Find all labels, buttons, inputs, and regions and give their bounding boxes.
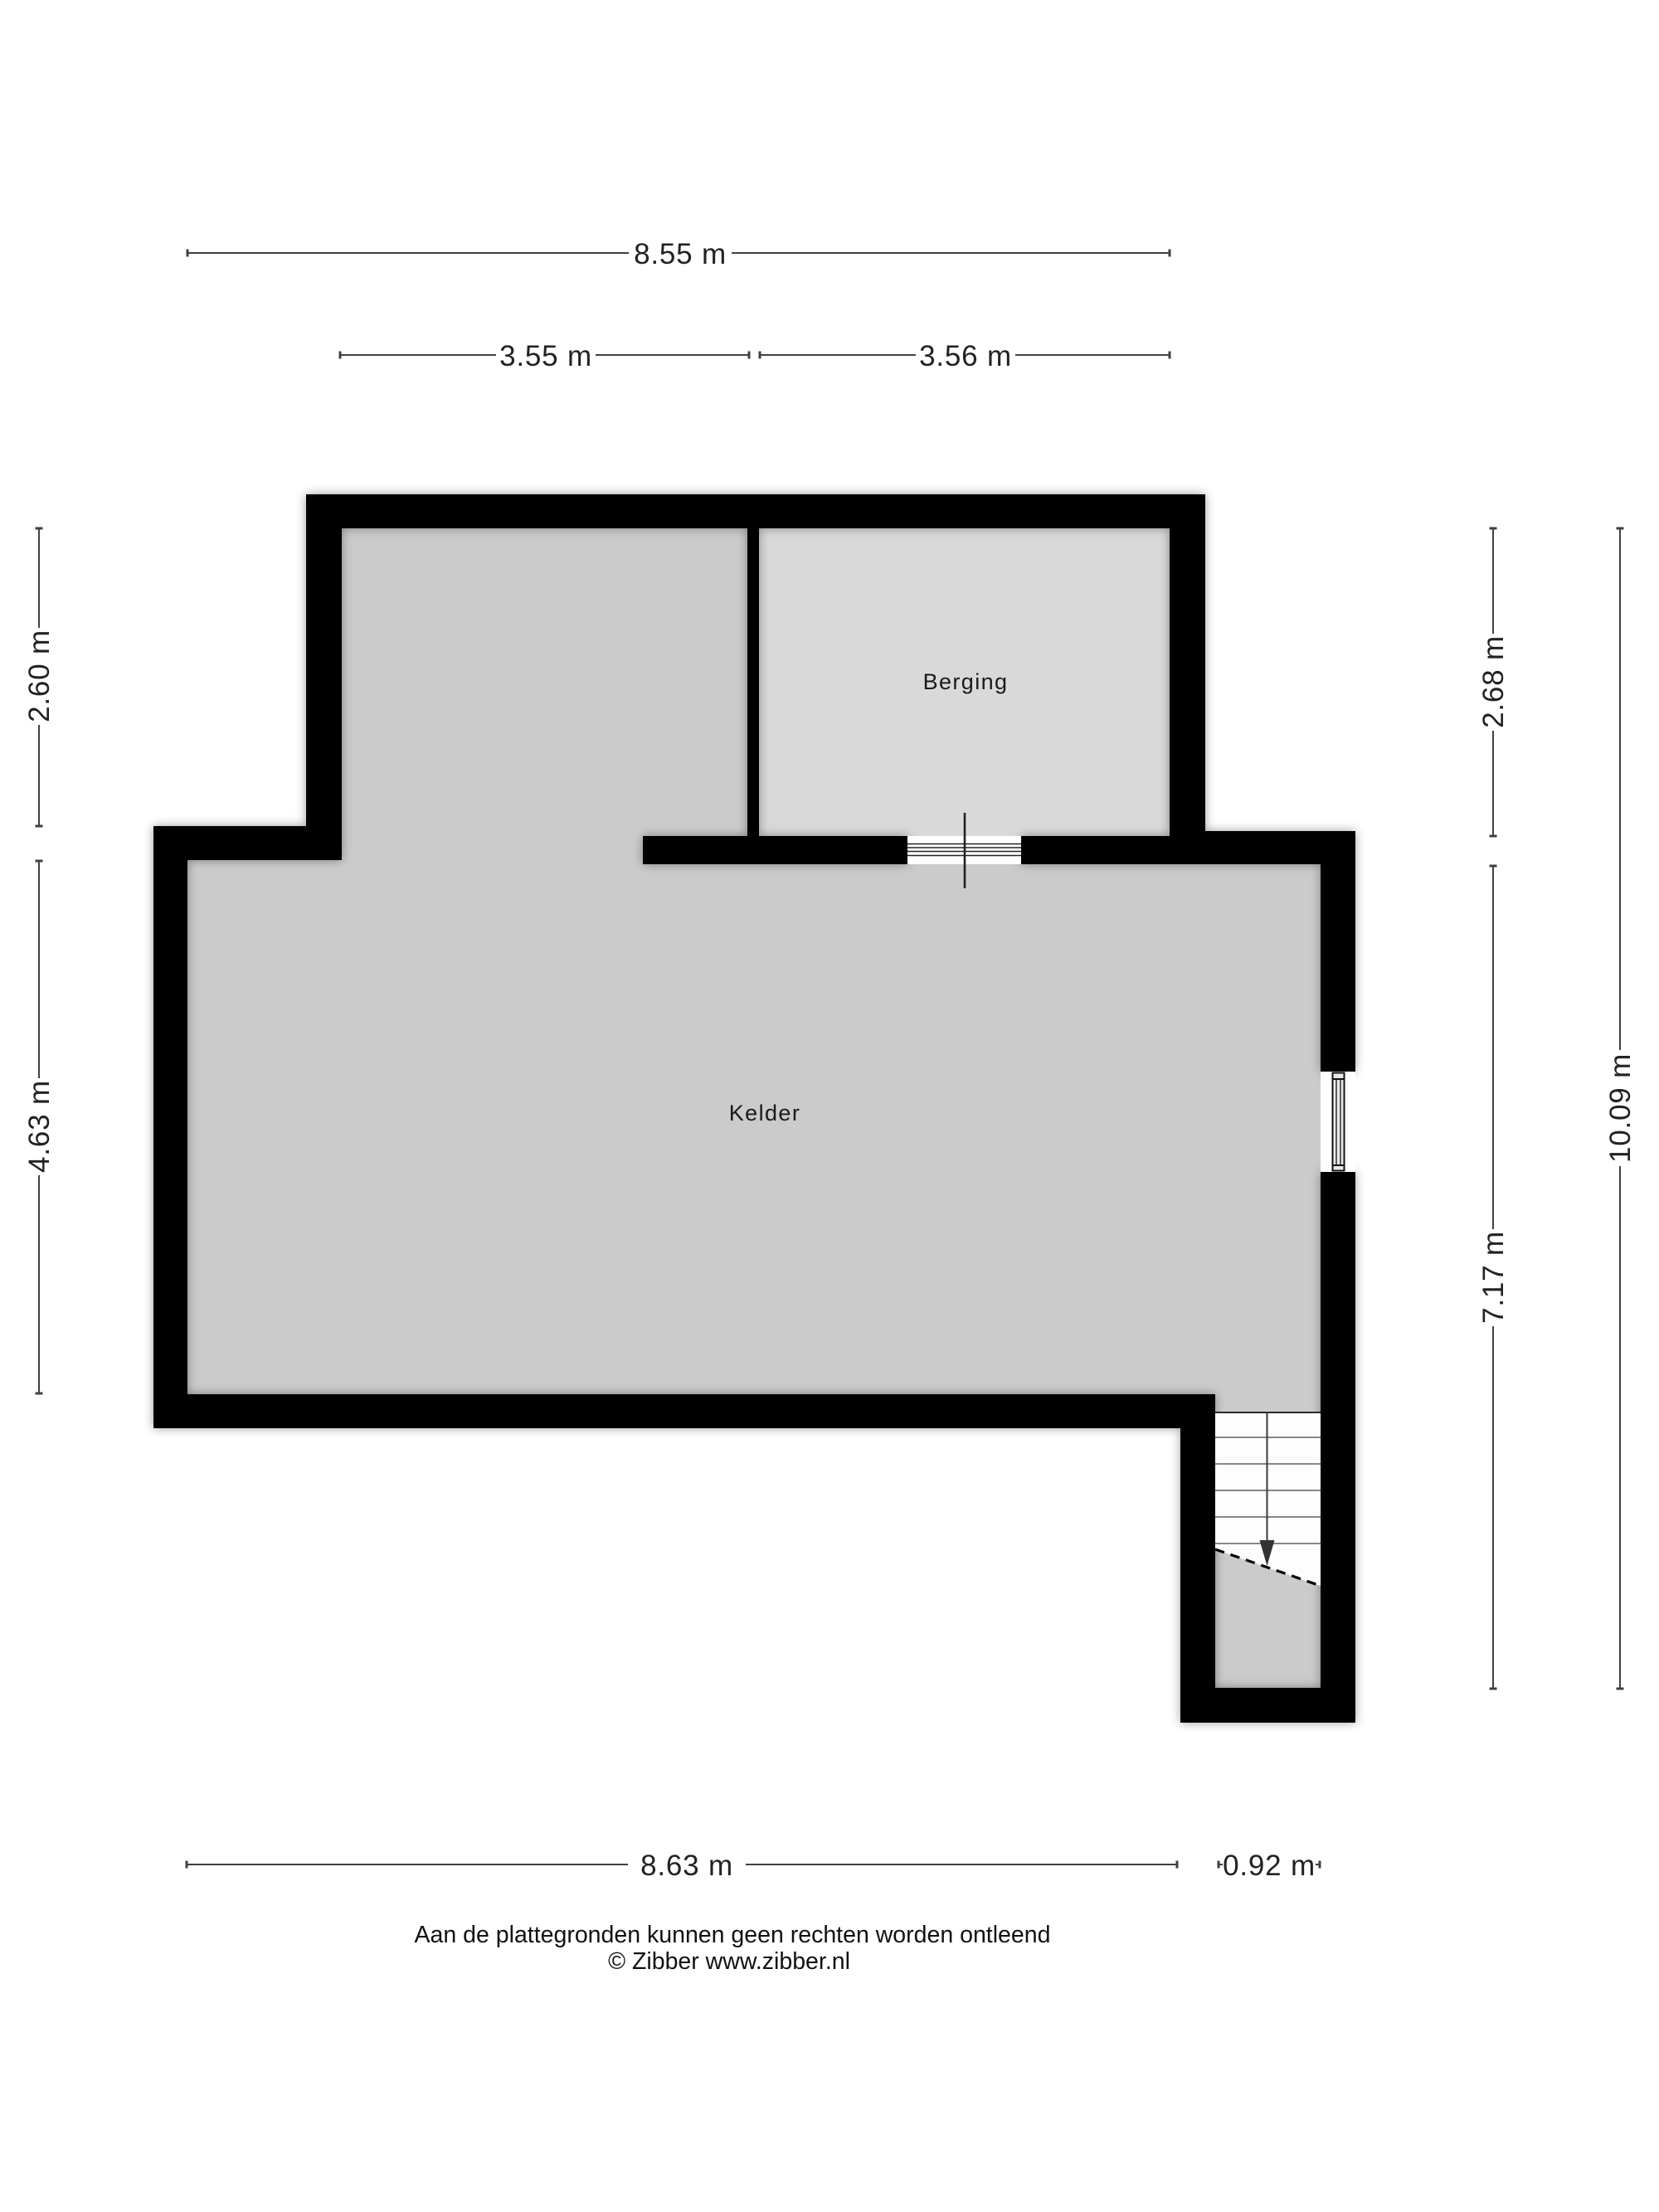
svg-text:8.63 m: 8.63 m [640, 1850, 733, 1882]
svg-text:0.92 m: 0.92 m [1223, 1850, 1316, 1882]
svg-text:10.09 m: 10.09 m [1604, 1053, 1637, 1163]
svg-text:Aan de plattegronden kunnen ge: Aan de plattegronden kunnen geen rechten… [415, 1922, 1051, 1948]
svg-text:3.55 m: 3.55 m [499, 340, 592, 372]
svg-text:2.60 m: 2.60 m [23, 630, 56, 722]
svg-text:Berging: Berging [923, 669, 1009, 694]
svg-text:4.63 m: 4.63 m [23, 1080, 56, 1173]
svg-text:3.56 m: 3.56 m [919, 340, 1012, 372]
svg-text:2.68 m: 2.68 m [1477, 635, 1510, 728]
svg-text:© Zibber www.zibber.nl: © Zibber www.zibber.nl [608, 1948, 850, 1975]
svg-text:Kelder: Kelder [729, 1101, 800, 1125]
svg-text:7.17 m: 7.17 m [1477, 1231, 1510, 1324]
svg-text:8.55 m: 8.55 m [634, 238, 727, 270]
